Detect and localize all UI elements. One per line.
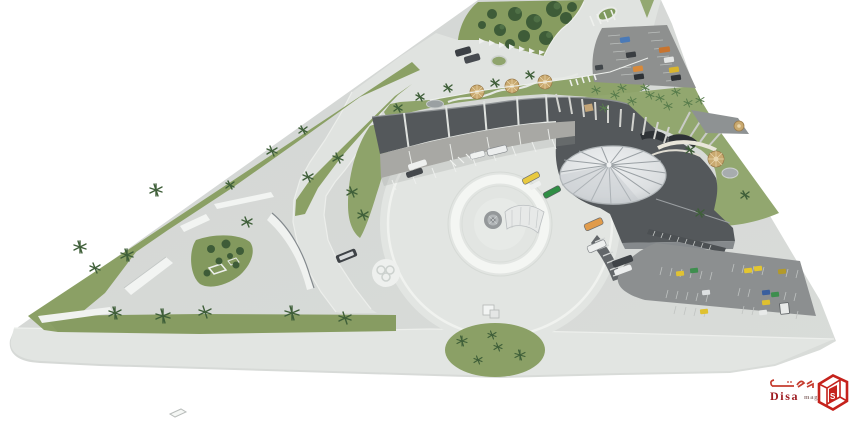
svg-text:mag: mag bbox=[804, 394, 818, 401]
svg-text:S: S bbox=[830, 392, 836, 401]
svg-text:Disa: Disa bbox=[770, 389, 799, 403]
